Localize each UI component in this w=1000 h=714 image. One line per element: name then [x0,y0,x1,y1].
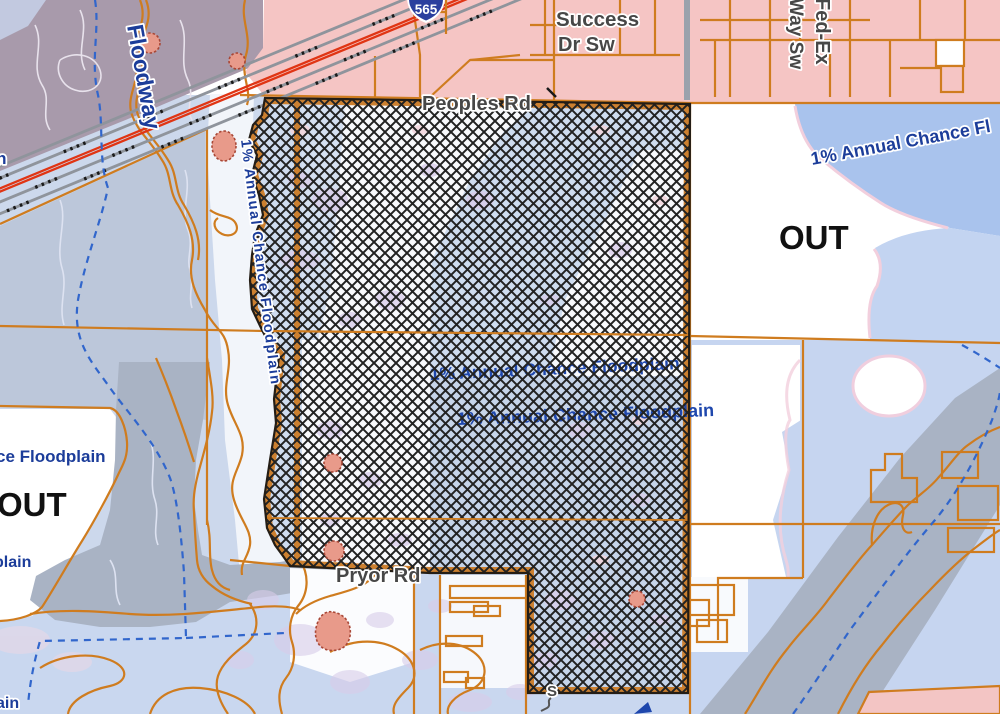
svg-text:ce Floodplain: ce Floodplain [0,447,106,466]
svg-text:S: S [547,683,557,700]
svg-text:565: 565 [415,2,438,17]
svg-text:plain: plain [0,554,31,571]
svg-text:OUT: OUT [0,486,67,523]
svg-text:Dr Sw: Dr Sw [558,34,615,56]
svg-text:Way Sw: Way Sw [785,0,806,69]
svg-text:OUT: OUT [779,219,849,256]
svg-text:ain: ain [0,149,7,168]
svg-text:Success: Success [556,8,639,31]
svg-text:Fed-Ex: Fed-Ex [811,0,833,65]
svg-text:Peoples Rd: Peoples Rd [422,93,531,115]
svg-text:Pryor Rd: Pryor Rd [336,565,420,587]
svg-text:ain: ain [0,695,19,712]
